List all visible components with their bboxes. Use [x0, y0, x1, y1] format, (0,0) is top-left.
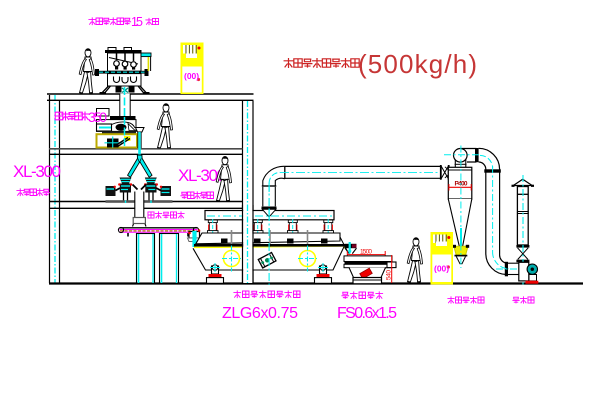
svg-text:(00): (00): [434, 264, 449, 274]
svg-text:(00): (00): [184, 71, 199, 81]
svg-text:350: 350: [88, 109, 107, 125]
svg-text:XL-300: XL-300: [13, 162, 61, 181]
svg-text:FS0.6x1.5: FS0.6x1.5: [337, 305, 397, 322]
svg-text:1.5: 1.5: [131, 15, 143, 29]
svg-text:(500kg/h): (500kg/h): [358, 49, 477, 79]
svg-text:540: 540: [386, 270, 393, 280]
svg-text:1500: 1500: [360, 249, 372, 256]
svg-text:ZLG6x0.75: ZLG6x0.75: [222, 305, 298, 322]
